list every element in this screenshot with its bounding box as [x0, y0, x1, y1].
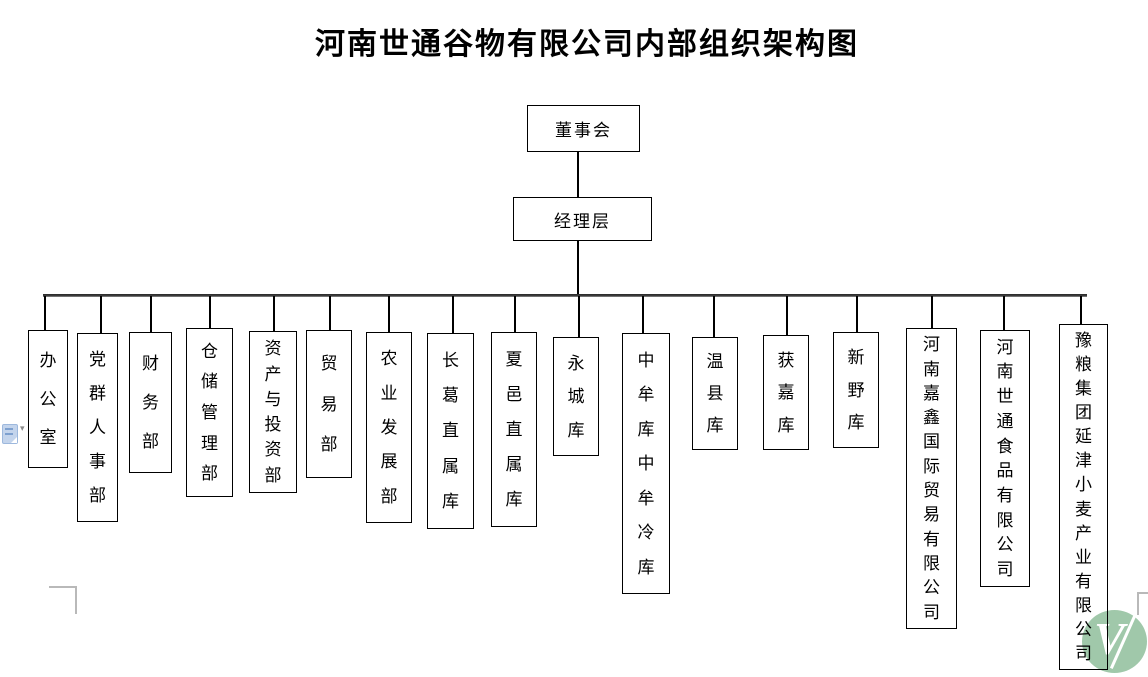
org-dept-label-char: 库 — [442, 493, 459, 510]
org-dept-label-char: 南 — [923, 361, 940, 378]
org-dept-label-char: 部 — [142, 433, 159, 450]
org-dept-label-char: 牟 — [638, 386, 655, 403]
org-dept-label-char: 司 — [1075, 645, 1092, 662]
org-dept-node-13[interactable]: 获嘉库 — [763, 335, 809, 450]
org-dept-label-char: 部 — [321, 436, 338, 453]
org-dept-label-char: 世 — [997, 388, 1014, 405]
org-dept-label-char: 通 — [997, 413, 1014, 430]
org-dept-label-char: 库 — [707, 417, 724, 434]
connector-line — [514, 296, 516, 332]
connector-line — [150, 296, 152, 332]
connector-line — [931, 296, 933, 328]
org-dept-label-char: 河 — [923, 336, 940, 353]
org-dept-label-char: 中 — [638, 455, 655, 472]
org-dept-label-char: 品 — [997, 462, 1014, 479]
org-dept-label-char: 粮 — [1075, 356, 1092, 373]
org-dept-node-12[interactable]: 温县库 — [692, 337, 738, 450]
org-dept-label-char: 限 — [1075, 597, 1092, 614]
org-dept-label-char: 资 — [265, 340, 282, 357]
org-dept-label-char: 事 — [89, 453, 106, 470]
org-dept-node-9[interactable]: 夏邑直属库 — [491, 332, 537, 527]
text-boundary-mark — [49, 586, 77, 614]
text-boundary-mark — [1137, 592, 1148, 615]
org-dept-label-char: 有 — [997, 487, 1014, 504]
org-dept-label-char: 易 — [923, 506, 940, 523]
org-dept-label-char: 嘉 — [778, 384, 795, 401]
connector-line — [273, 296, 275, 331]
org-dept-label-char: 公 — [40, 391, 57, 408]
org-dept-label-char: 葛 — [442, 387, 459, 404]
connector-line — [577, 151, 579, 197]
org-dept-label-char: 属 — [506, 456, 523, 473]
org-dept-label-char: 城 — [568, 388, 585, 405]
org-dept-node-15[interactable]: 河南嘉鑫国际贸易有限公司 — [906, 328, 957, 629]
org-dept-node-14[interactable]: 新野库 — [833, 332, 879, 448]
org-dept-label-char: 发 — [381, 419, 398, 436]
org-dept-label-char: 永 — [568, 355, 585, 372]
org-dept-label-char: 中 — [638, 352, 655, 369]
org-dept-label-char: 产 — [1075, 525, 1092, 542]
org-dept-label-char: 财 — [142, 355, 159, 372]
org-node-board[interactable]: 董事会 — [527, 105, 640, 152]
org-dept-label-char: 业 — [381, 385, 398, 402]
connector-line — [452, 296, 454, 333]
org-dept-label-char: 际 — [923, 458, 940, 475]
org-dept-label-char: 延 — [1075, 428, 1092, 445]
org-dept-label-char: 长 — [442, 352, 459, 369]
org-dept-label-char: 团 — [1075, 404, 1092, 421]
org-dept-node-5[interactable]: 资产与投资部 — [249, 331, 297, 493]
org-dept-label-char: 野 — [848, 382, 865, 399]
org-dept-label-char: 展 — [381, 453, 398, 470]
org-dept-label-char: 部 — [201, 465, 218, 482]
org-dept-label-char: 温 — [707, 353, 724, 370]
connector-line — [1080, 296, 1082, 324]
org-dept-label-char: 库 — [848, 414, 865, 431]
connector-line — [786, 296, 788, 335]
org-dept-label-char: 资 — [265, 441, 282, 458]
org-dept-label-char: 司 — [997, 561, 1014, 578]
org-node-management[interactable]: 经理层 — [513, 197, 652, 241]
connector-line — [578, 296, 580, 337]
org-dept-label-char: 贸 — [923, 482, 940, 499]
org-dept-node-11[interactable]: 中牟库中牟冷库 — [622, 333, 670, 594]
org-dept-node-6[interactable]: 贸易部 — [306, 330, 352, 478]
org-dept-label-char: 部 — [265, 467, 282, 484]
org-dept-label-char: 麦 — [1075, 501, 1092, 518]
org-dept-node-7[interactable]: 农业发展部 — [366, 332, 412, 523]
org-dept-label-char: 党 — [89, 351, 106, 368]
org-dept-label-char: 河 — [997, 339, 1014, 356]
org-dept-label-char: 库 — [638, 421, 655, 438]
connector-line — [388, 296, 390, 332]
org-dept-label-char: 鑫 — [923, 409, 940, 426]
org-dept-label-char: 室 — [40, 429, 57, 446]
org-dept-node-8[interactable]: 长葛直属库 — [427, 333, 474, 529]
connector-line — [713, 296, 715, 337]
org-dept-label-char: 公 — [923, 579, 940, 596]
org-dept-label-char: 县 — [707, 385, 724, 402]
org-dept-node-4[interactable]: 仓储管理部 — [186, 328, 233, 497]
org-dept-label-char: 部 — [381, 488, 398, 505]
org-dept-label-char: 新 — [848, 349, 865, 366]
org-dept-label-char: 库 — [638, 559, 655, 576]
org-node-label: 经理层 — [554, 207, 611, 232]
paste-options-icon[interactable] — [2, 424, 18, 444]
org-dept-label-char: 易 — [321, 396, 338, 413]
org-dept-label-char: 豫 — [1075, 332, 1092, 349]
org-dept-node-16[interactable]: 河南世通食品有限公司 — [980, 330, 1030, 587]
org-dept-label-char: 国 — [923, 433, 940, 450]
org-dept-label-char: 限 — [923, 555, 940, 572]
org-dept-label-char: 夏 — [506, 351, 523, 368]
org-dept-label-char: 牟 — [638, 490, 655, 507]
org-dept-label-char: 公 — [1075, 621, 1092, 638]
org-dept-label-char: 库 — [778, 417, 795, 434]
org-dept-label-char: 业 — [1075, 549, 1092, 566]
org-dept-label-char: 储 — [201, 373, 218, 390]
org-dept-label-char: 与 — [265, 391, 282, 408]
org-dept-label-char: 直 — [442, 422, 459, 439]
org-dept-node-2[interactable]: 党群人事部 — [77, 333, 118, 522]
connector-line — [577, 240, 579, 295]
page-title: 河南世通谷物有限公司内部组织架构图 — [315, 19, 859, 63]
org-node-label: 董事会 — [555, 116, 612, 141]
connector-line — [100, 296, 102, 333]
org-dept-label-char: 人 — [89, 419, 106, 436]
connector-line — [329, 296, 331, 330]
org-dept-label-char: 食 — [997, 438, 1014, 455]
org-dept-label-char: 务 — [142, 394, 159, 411]
connector-line — [44, 296, 46, 330]
org-dept-label-char: 公 — [997, 536, 1014, 553]
org-dept-label-char: 邑 — [506, 386, 523, 403]
org-dept-label-char: 办 — [40, 352, 57, 369]
connector-line — [642, 296, 644, 333]
org-dept-node-1[interactable]: 办公室 — [28, 330, 68, 468]
org-dept-label-char: 直 — [506, 421, 523, 438]
connector-line — [1003, 296, 1005, 330]
org-dept-label-char: 贸 — [321, 355, 338, 372]
org-dept-label-char: 有 — [1075, 573, 1092, 590]
org-dept-label-char: 投 — [265, 416, 282, 433]
org-dept-label-char: 理 — [201, 435, 218, 452]
connector-line — [856, 296, 858, 332]
org-chart-canvas: 河南世通谷物有限公司内部组织架构图 董事会 经理层 ▾ V 办公室党群人事部财务… — [0, 0, 1148, 677]
org-dept-label-char: 有 — [923, 531, 940, 548]
org-dept-label-char: 属 — [442, 458, 459, 475]
org-dept-node-3[interactable]: 财务部 — [129, 332, 172, 473]
org-dept-node-17[interactable]: 豫粮集团延津小麦产业有限公司 — [1059, 324, 1108, 670]
org-dept-label-char: 部 — [89, 487, 106, 504]
org-dept-label-char: 仓 — [201, 343, 218, 360]
org-dept-label-char: 集 — [1075, 380, 1092, 397]
org-dept-label-char: 库 — [506, 491, 523, 508]
org-dept-label-char: 产 — [265, 366, 282, 383]
connector-line — [209, 296, 211, 328]
org-dept-label-char: 小 — [1075, 476, 1092, 493]
org-dept-label-char: 嘉 — [923, 385, 940, 402]
org-dept-label-char: 限 — [997, 512, 1014, 529]
org-dept-label-char: 津 — [1075, 452, 1092, 469]
org-dept-label-char: 冷 — [638, 524, 655, 541]
org-dept-label-char: 司 — [923, 604, 940, 621]
org-dept-label-char: 群 — [89, 385, 106, 402]
org-dept-label-char: 农 — [381, 350, 398, 367]
org-dept-label-char: 南 — [997, 363, 1014, 380]
org-dept-label-char: 获 — [778, 352, 795, 369]
org-dept-label-char: 库 — [568, 422, 585, 439]
dropdown-arrow-icon[interactable]: ▾ — [20, 424, 25, 434]
org-dept-label-char: 管 — [201, 404, 218, 421]
org-dept-node-10[interactable]: 永城库 — [553, 337, 599, 456]
